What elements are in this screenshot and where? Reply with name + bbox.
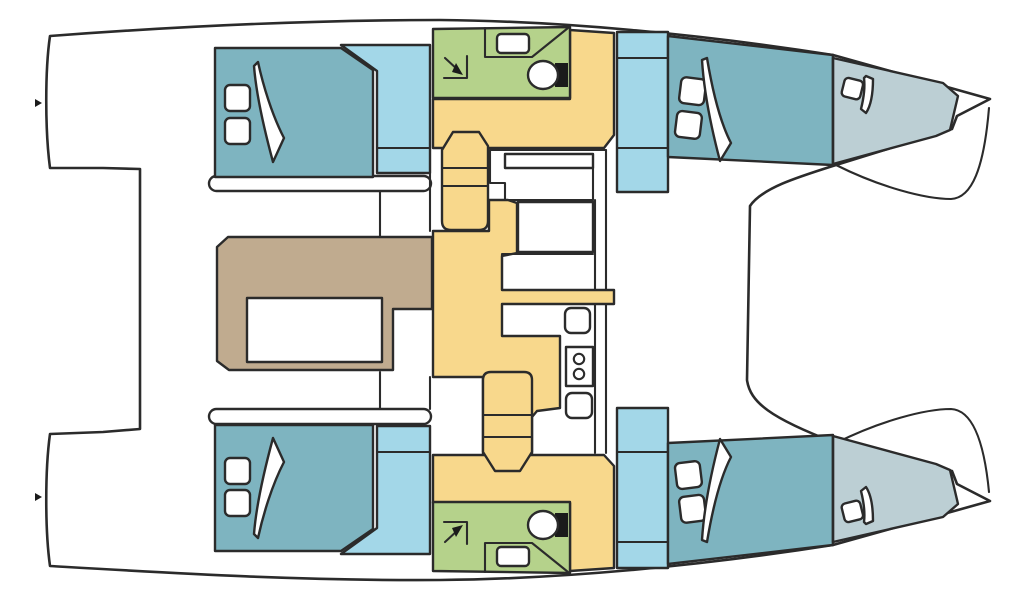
two-burner-stove (566, 347, 593, 386)
galley-sink (565, 308, 590, 333)
port-mid-locker (617, 32, 668, 192)
starboard-step-bolster (209, 409, 431, 424)
companionway-stairs-starboard (483, 372, 532, 471)
port-fwd-cabin (668, 36, 833, 165)
toilet (528, 61, 568, 89)
wash-basin (497, 547, 529, 566)
pillow (679, 494, 707, 523)
transom-mark-top (35, 99, 42, 107)
starboard-aft-cabin (215, 425, 373, 551)
pillow (679, 77, 707, 106)
starboard-head (433, 502, 570, 573)
toilet (528, 511, 568, 539)
floor-plan-canvas (0, 0, 1024, 600)
pillow (225, 458, 250, 484)
port-step-bolster (209, 176, 431, 191)
pillow (225, 118, 250, 144)
galley-oven (566, 393, 592, 418)
pillow (225, 490, 250, 516)
port-head (433, 27, 570, 98)
starboard-fwd-cabin (668, 435, 833, 564)
starboard-bow-berth (833, 436, 958, 542)
port-aft-cabin (215, 48, 373, 177)
transom-mark-bottom (35, 493, 42, 501)
companionway-stairs-port (442, 132, 488, 230)
pillow (674, 461, 702, 490)
boat-floor-plan (0, 0, 1024, 600)
pillow (841, 500, 864, 523)
pillow (225, 85, 250, 111)
wash-basin (497, 34, 529, 53)
galley-shelf (505, 154, 593, 168)
pillow (841, 77, 864, 100)
pillow (674, 111, 702, 140)
galley-fridge (518, 202, 593, 252)
port-bow-berth (833, 58, 958, 164)
dinette-table (247, 298, 382, 362)
starboard-mid-locker (617, 408, 668, 568)
